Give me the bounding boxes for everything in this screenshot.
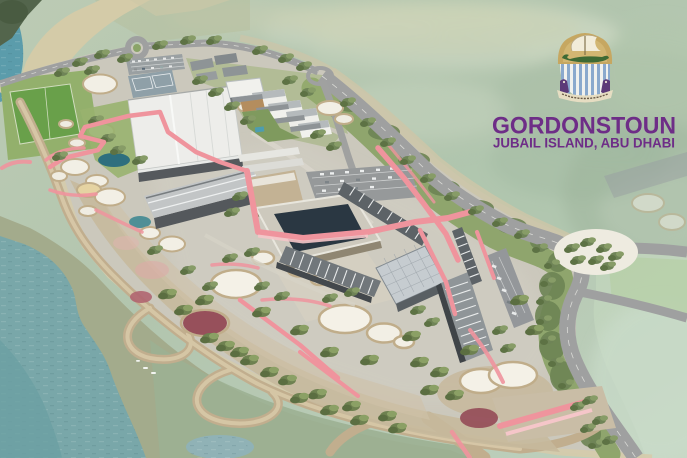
svg-text:JUBAIL ISLAND, ABU DHABI: JUBAIL ISLAND, ABU DHABI	[493, 136, 675, 151]
